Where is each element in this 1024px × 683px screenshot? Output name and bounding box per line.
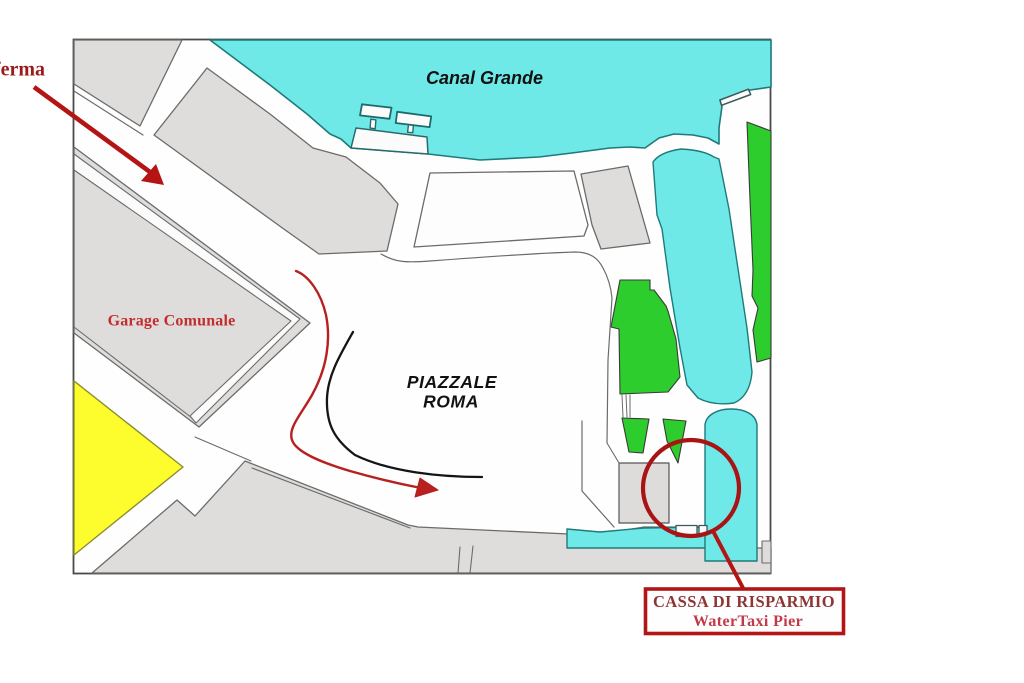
svg-text:Canal Grande: Canal Grande [426, 68, 543, 88]
svg-text:ROMA: ROMA [423, 392, 479, 412]
svg-text:CASSA DI RISPARMIO: CASSA DI RISPARMIO [653, 592, 835, 611]
svg-text:Garage Comunale: Garage Comunale [108, 313, 236, 330]
svg-text:WaterTaxi Pier: WaterTaxi Pier [693, 613, 803, 630]
svg-text:ferma: ferma [0, 59, 45, 81]
svg-text:PIAZZALE: PIAZZALE [407, 372, 498, 392]
